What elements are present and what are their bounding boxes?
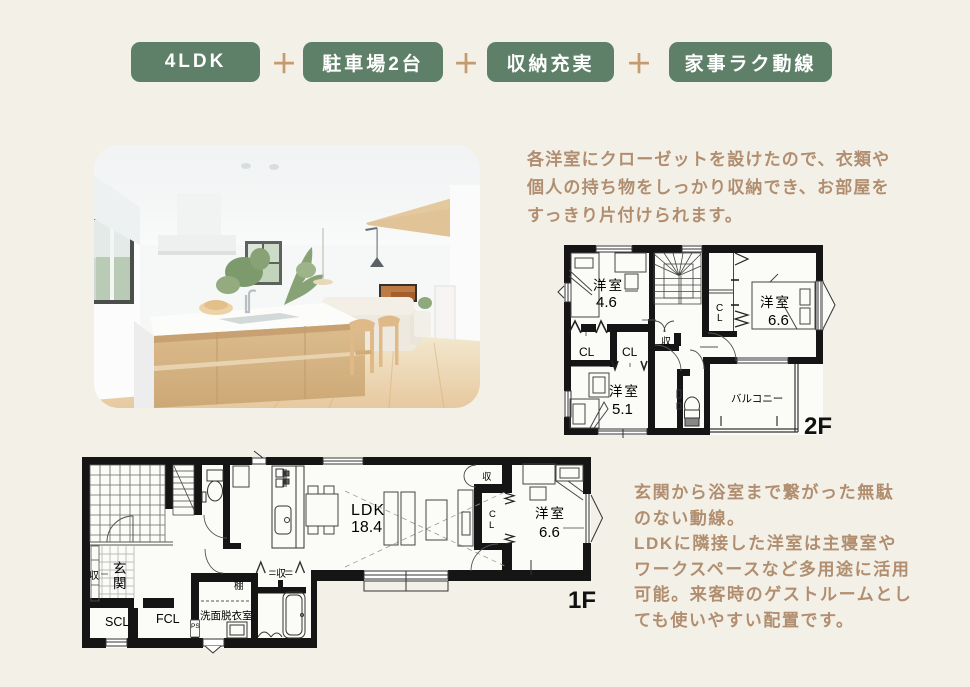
svg-text:C: C	[489, 509, 496, 520]
svg-text:CL: CL	[579, 345, 595, 359]
svg-text:5.1: 5.1	[612, 401, 633, 418]
svg-text:洋室: 洋室	[609, 383, 640, 399]
svg-text:バルコニー: バルコニー	[731, 393, 783, 405]
svg-text:玄: 玄	[113, 560, 127, 576]
svg-text:PS: PS	[191, 623, 200, 630]
svg-text:L: L	[717, 313, 723, 324]
svg-text:FCL: FCL	[156, 612, 180, 626]
svg-text:洋室: 洋室	[760, 294, 791, 310]
svg-text:洋室: 洋室	[593, 277, 624, 293]
svg-text:収: 収	[89, 570, 99, 582]
svg-text:L: L	[489, 520, 494, 531]
svg-text:洋室: 洋室	[535, 505, 566, 521]
svg-text:6.6: 6.6	[539, 524, 560, 541]
svg-text:収: 収	[276, 568, 286, 580]
svg-text:洗面脱衣室: 洗面脱衣室	[200, 609, 253, 622]
svg-text:LDK: LDK	[351, 502, 385, 519]
svg-text:CL: CL	[622, 345, 638, 359]
svg-text:棚: 棚	[234, 580, 244, 592]
svg-text:SCL: SCL	[105, 615, 129, 629]
svg-text:収: 収	[482, 471, 492, 483]
svg-text:6.6: 6.6	[768, 312, 789, 329]
svg-text:18.4: 18.4	[351, 519, 382, 536]
svg-text:関: 関	[113, 576, 127, 591]
svg-text:4.6: 4.6	[596, 294, 617, 311]
